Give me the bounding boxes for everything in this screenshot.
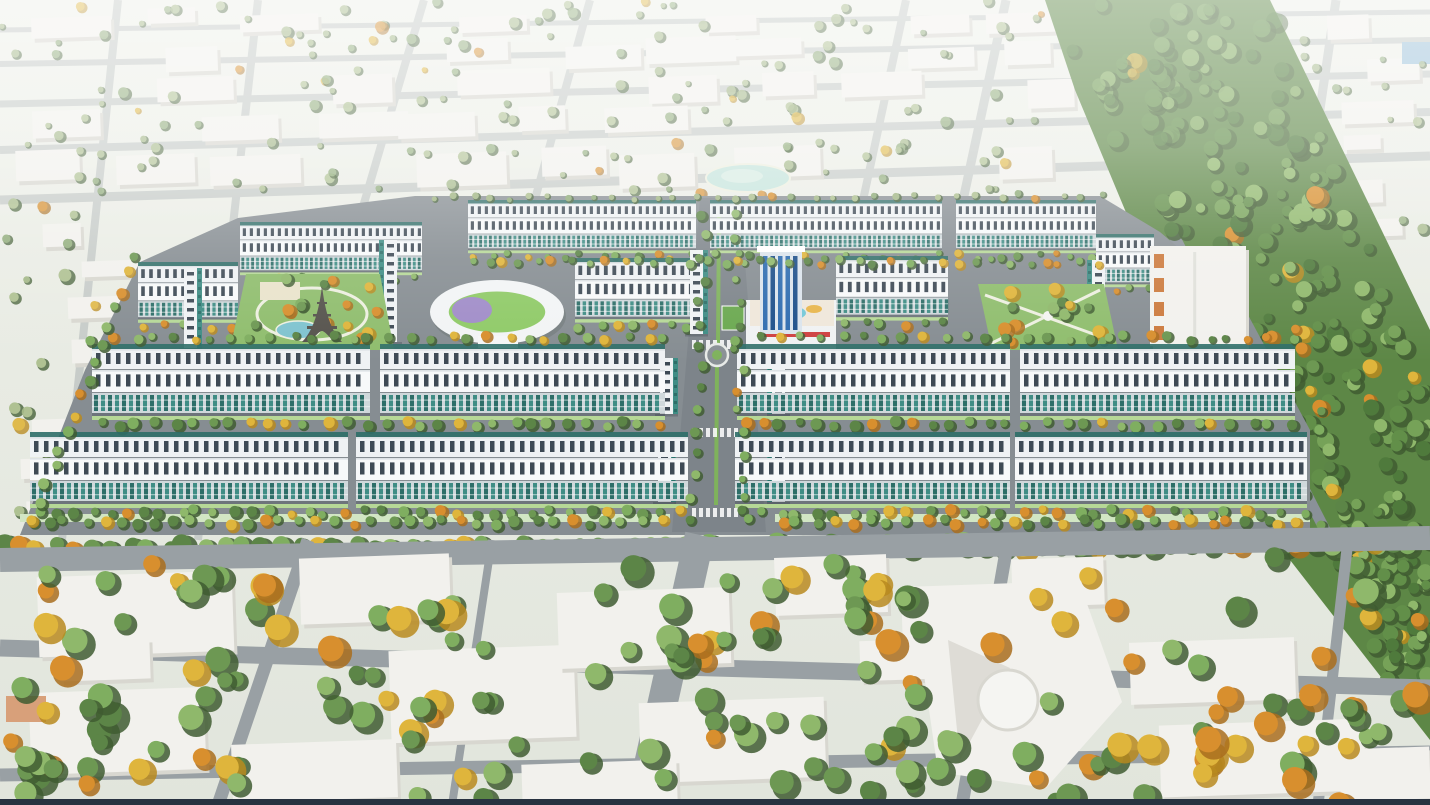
render-canvas bbox=[0, 0, 1430, 805]
atmosphere bbox=[0, 0, 1430, 805]
haze-overlay bbox=[0, 0, 1430, 805]
frame bbox=[0, 799, 1430, 805]
bottom-edge-bar bbox=[0, 799, 1430, 805]
masterplan-aerial-view bbox=[0, 0, 1430, 805]
